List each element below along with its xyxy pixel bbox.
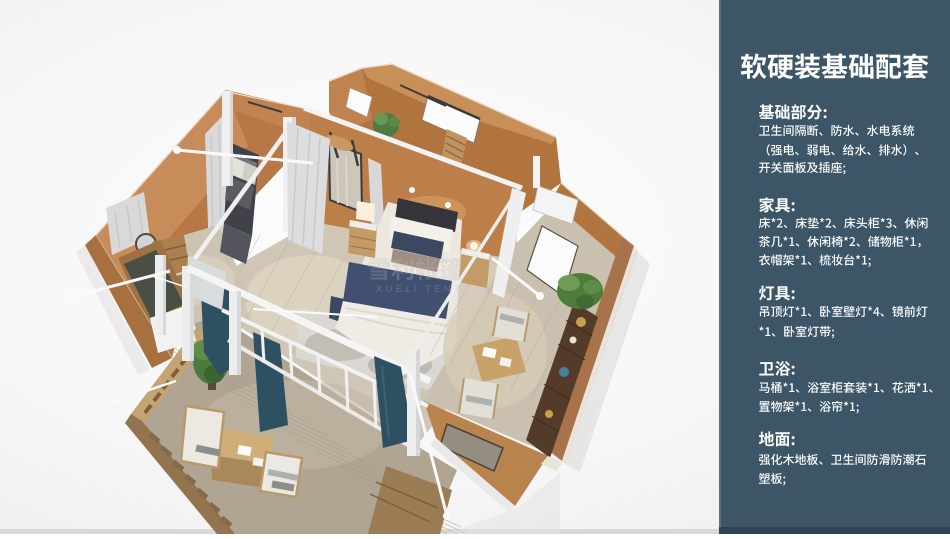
svg-text:XUELI TENT: XUELI TENT (376, 284, 463, 295)
